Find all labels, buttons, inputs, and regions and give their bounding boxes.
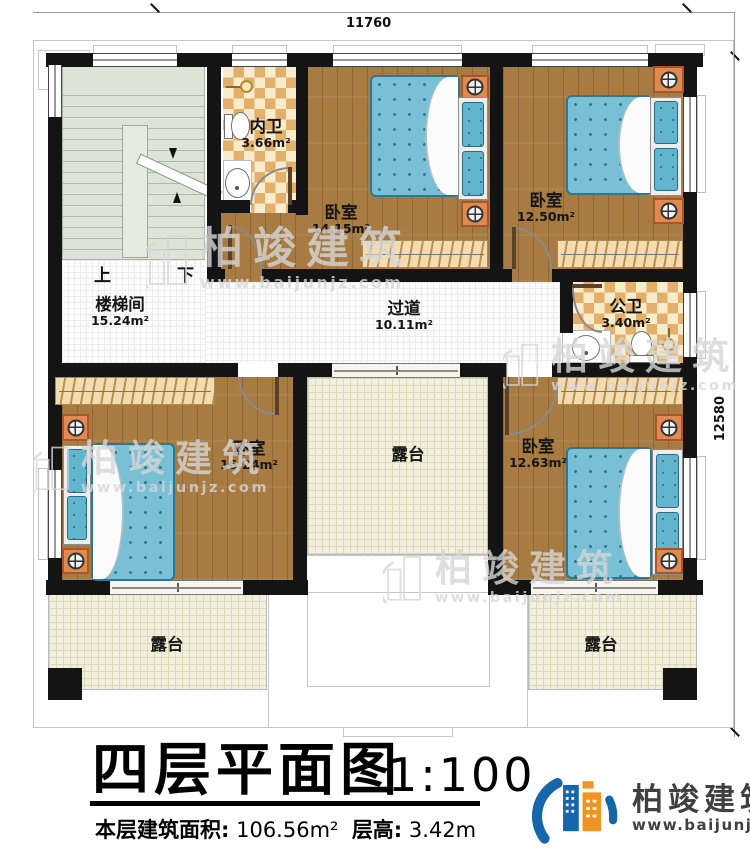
lamp-icon bbox=[660, 203, 677, 220]
wardrobe bbox=[362, 240, 488, 268]
nightstand bbox=[62, 548, 89, 574]
stair-up-label: 上 bbox=[94, 261, 111, 286]
room-label-stairwell: 楼梯间15.24m² bbox=[91, 296, 149, 328]
lamp-icon bbox=[660, 71, 677, 88]
nightstand bbox=[653, 66, 684, 93]
wall bbox=[293, 363, 307, 595]
wall bbox=[683, 357, 697, 458]
stair-down-label: 下 bbox=[177, 261, 194, 286]
door-leaf bbox=[228, 225, 232, 269]
wall bbox=[48, 363, 238, 377]
bottom-step-outline bbox=[343, 727, 453, 737]
room-label-corridor: 过道10.11m² bbox=[375, 300, 433, 332]
wall bbox=[683, 53, 697, 97]
lamp-icon bbox=[661, 553, 678, 570]
wall bbox=[207, 200, 250, 213]
wall bbox=[683, 192, 697, 293]
window bbox=[48, 470, 62, 558]
wardrobe bbox=[55, 377, 215, 405]
pillow bbox=[654, 148, 678, 191]
lamp-icon bbox=[467, 79, 484, 96]
room-label-terrace-bottom-left: 露台 bbox=[151, 636, 184, 654]
room-label-terrace-bottom-right: 露台 bbox=[585, 636, 618, 654]
stair-divider bbox=[122, 125, 148, 258]
door-leaf bbox=[505, 377, 509, 435]
floor-area-value: 106.56m² bbox=[236, 818, 338, 842]
floor-height-value: 3.42m bbox=[409, 818, 476, 842]
dimension-tick bbox=[730, 727, 740, 737]
room-label-bedroom-bottom-right: 卧室12.63m² bbox=[509, 438, 567, 470]
door-leaf bbox=[275, 377, 279, 415]
window bbox=[48, 65, 62, 117]
wardrobe bbox=[557, 377, 683, 405]
bed-mattress bbox=[566, 447, 652, 579]
pillow bbox=[67, 496, 87, 540]
floor-info: 本层建筑面积: 106.56m² 层高: 3.42m bbox=[95, 814, 476, 844]
floor-plan-canvas: 11760 12580 bbox=[0, 0, 750, 850]
floor-drain-icon bbox=[662, 338, 675, 351]
wall bbox=[490, 53, 503, 282]
top-dimension-line bbox=[33, 12, 734, 13]
terrace-pier bbox=[48, 668, 82, 700]
wall bbox=[207, 53, 221, 282]
window-sill bbox=[697, 95, 706, 193]
window bbox=[683, 458, 697, 558]
top-dimension-value: 11760 bbox=[346, 16, 391, 31]
room-label-terrace-center: 露台 bbox=[392, 446, 425, 464]
title-underline bbox=[90, 801, 480, 806]
wardrobe bbox=[557, 240, 683, 268]
nightstand bbox=[653, 198, 684, 224]
floor-height-label: 层高: bbox=[352, 818, 402, 842]
drain-stem-icon bbox=[668, 328, 670, 338]
window bbox=[93, 53, 177, 67]
pillow bbox=[462, 102, 484, 147]
toilet-icon bbox=[631, 331, 652, 357]
towel-ring-icon bbox=[240, 80, 253, 93]
bed-mattress bbox=[566, 95, 652, 195]
wall bbox=[177, 53, 232, 67]
lamp-icon bbox=[467, 206, 484, 223]
wall bbox=[207, 269, 225, 282]
sink-drain-icon bbox=[235, 186, 239, 190]
sink-drain-icon bbox=[584, 351, 588, 355]
room-label-bedroom-top-right: 卧室12.50m² bbox=[517, 192, 575, 224]
wall bbox=[296, 53, 308, 215]
wall bbox=[552, 269, 683, 282]
nightstand bbox=[461, 75, 489, 99]
window bbox=[683, 293, 697, 357]
wall bbox=[46, 580, 110, 595]
window-sill bbox=[697, 291, 706, 359]
bed-mattress bbox=[91, 443, 175, 581]
company-logo: 柏竣建筑 www.baijunjz.com bbox=[528, 772, 750, 846]
stair-arrow-icon bbox=[173, 192, 181, 203]
stair-arrow-icon bbox=[169, 148, 177, 159]
room-label-bedroom-bottom-left: 卧室16.24m² bbox=[220, 440, 278, 472]
pillow bbox=[654, 101, 678, 144]
sliding-door bbox=[332, 363, 460, 378]
lamp-icon bbox=[67, 553, 84, 570]
nightstand bbox=[655, 414, 683, 441]
room-label-public-bathroom: 公卫3.40m² bbox=[601, 298, 650, 330]
sliding-door bbox=[110, 580, 243, 595]
floor-area-label: 本层建筑面积: bbox=[95, 818, 229, 842]
logo-website: www.baijunjz.com bbox=[632, 816, 750, 834]
window bbox=[333, 53, 462, 67]
logo-company-name: 柏竣建筑 bbox=[632, 784, 750, 817]
room-label-bedroom-top-middle: 卧室14.15m² bbox=[312, 204, 370, 236]
logo-building-icon bbox=[528, 772, 624, 846]
toilet-tank-icon bbox=[629, 355, 654, 363]
nightstand bbox=[62, 414, 89, 441]
wall bbox=[262, 269, 512, 282]
terrace-center-floor bbox=[307, 377, 488, 555]
bed-blanket bbox=[618, 449, 650, 577]
window bbox=[532, 53, 648, 67]
wall bbox=[48, 117, 62, 470]
sliding-door bbox=[531, 580, 658, 595]
pillow bbox=[462, 151, 484, 196]
window-sill bbox=[697, 456, 706, 560]
room-label-inner-bathroom: 内卫3.66m² bbox=[241, 118, 290, 150]
bed-blanket bbox=[618, 97, 650, 193]
window bbox=[232, 53, 287, 67]
nightstand bbox=[655, 548, 683, 574]
lamp-icon bbox=[67, 419, 84, 436]
bed-mattress bbox=[370, 75, 460, 197]
window bbox=[683, 97, 697, 192]
lamp-icon bbox=[661, 419, 678, 436]
page-title: 四层平面图 bbox=[92, 742, 402, 799]
wall bbox=[658, 580, 703, 595]
sink-icon bbox=[225, 168, 250, 198]
pillow bbox=[67, 449, 87, 493]
bed-blanket bbox=[425, 77, 458, 195]
nightstand bbox=[461, 201, 489, 227]
sink-icon bbox=[572, 335, 600, 361]
wall bbox=[278, 363, 332, 377]
wall bbox=[287, 53, 333, 67]
wall bbox=[460, 363, 507, 377]
bottom-center-inner-outline bbox=[307, 592, 490, 687]
terrace-pier bbox=[663, 668, 697, 700]
right-dimension-line bbox=[734, 12, 735, 737]
logo-text: 柏竣建筑 www.baijunjz.com bbox=[632, 784, 750, 835]
bed-blanket bbox=[93, 445, 124, 579]
wall bbox=[488, 363, 503, 595]
door-leaf bbox=[512, 227, 516, 269]
wall bbox=[552, 363, 683, 377]
title-scale: 1:100 bbox=[388, 752, 536, 798]
door-leaf bbox=[288, 167, 292, 205]
pillow bbox=[656, 454, 679, 508]
window-sill bbox=[38, 468, 48, 560]
